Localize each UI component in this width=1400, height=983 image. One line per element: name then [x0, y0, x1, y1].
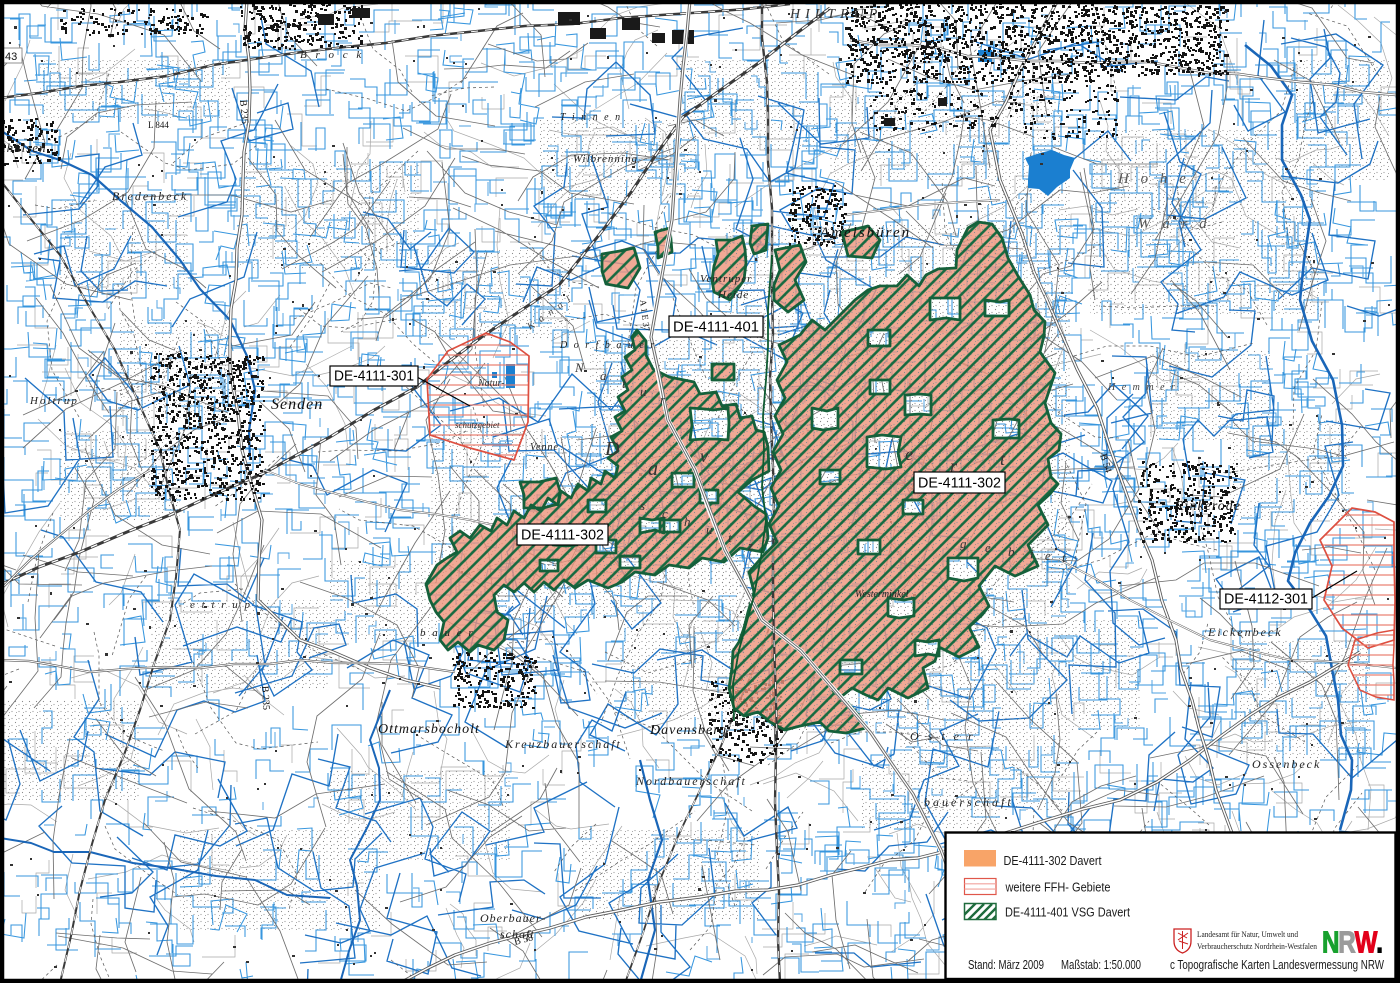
- svg-text:b a u e r: b a u e r: [420, 627, 475, 639]
- svg-text:Heide: Heide: [717, 289, 749, 301]
- svg-text:Westerminkel: Westerminkel: [855, 589, 909, 600]
- svg-text:HILTRUP: HILTRUP: [789, 7, 882, 22]
- svg-text:e t t r u p: e t t r u p: [190, 599, 252, 611]
- svg-text:t: t: [622, 376, 626, 391]
- svg-text:H e m m e r: H e m m e r: [1107, 382, 1177, 393]
- svg-text:Senden: Senden: [271, 396, 323, 413]
- svg-text:D o r f b a u e r: D o r f b a u e r: [559, 340, 656, 351]
- svg-text:b: b: [1008, 544, 1015, 559]
- svg-text:e: e: [985, 540, 991, 555]
- svg-text:N: N: [574, 360, 585, 375]
- svg-text:lhülsen: lhülsen: [2, 140, 47, 155]
- svg-text:Davensberg: Davensberg: [649, 723, 727, 738]
- svg-text:DE-4111-301: DE-4111-301: [334, 369, 414, 385]
- svg-text:z: z: [747, 538, 753, 553]
- svg-text:DE-4111-401: DE-4111-401: [673, 320, 759, 336]
- svg-text:Natur-: Natur-: [477, 378, 504, 389]
- svg-text:43: 43: [5, 51, 17, 63]
- svg-text:W a r d: W a r d: [1138, 216, 1211, 232]
- svg-text:schutzgebiet: schutzgebiet: [455, 420, 500, 430]
- svg-text:c: c: [662, 506, 668, 521]
- svg-text:Ossenbeck: Ossenbeck: [1252, 757, 1321, 771]
- svg-text:e: e: [905, 444, 913, 464]
- svg-text:Venne: Venne: [530, 442, 559, 453]
- svg-text:B 235: B 235: [259, 686, 271, 711]
- svg-text:e: e: [1045, 548, 1051, 563]
- svg-text:Rinkerode: Rinkerode: [1174, 499, 1241, 514]
- svg-text:a: a: [648, 458, 658, 480]
- svg-text:Oberbauer-: Oberbauer-: [480, 911, 546, 925]
- svg-text:v: v: [700, 446, 708, 466]
- svg-text:O s t e r: O s t e r: [910, 729, 976, 743]
- svg-text:Bredenbeck: Bredenbeck: [112, 189, 188, 203]
- svg-text:H o h e: H o h e: [1117, 171, 1190, 187]
- svg-text:a: a: [600, 368, 607, 383]
- svg-text:Holtrup: Holtrup: [29, 395, 79, 407]
- svg-text:bauerschaft: bauerschaft: [924, 795, 1014, 809]
- svg-text:Wilbrenning: Wilbrenning: [573, 153, 638, 165]
- svg-text:Kreuzbauerschaft: Kreuzbauerschaft: [504, 737, 622, 751]
- svg-text:T i n n e n: T i n n e n: [560, 112, 622, 123]
- svg-text:B 235: B 235: [237, 99, 250, 124]
- svg-text:B r o c k: B r o c k: [300, 49, 364, 61]
- svg-text:DE-4111-302: DE-4111-302: [918, 476, 1001, 492]
- svg-text:Ventruper: Ventruper: [700, 273, 752, 285]
- svg-text:Amelsbüren: Amelsbüren: [819, 225, 911, 241]
- svg-text:u: u: [706, 522, 713, 537]
- svg-text:s: s: [640, 498, 645, 513]
- svg-text:t: t: [728, 530, 732, 545]
- svg-text:Nordbauerschaft: Nordbauerschaft: [635, 774, 747, 788]
- svg-text:Ottmarsbocholt: Ottmarsbocholt: [378, 722, 480, 737]
- svg-text:Eickenbeck: Eickenbeck: [1207, 625, 1283, 639]
- svg-text:i: i: [1030, 546, 1034, 561]
- svg-text:D: D: [604, 438, 620, 460]
- svg-text:h: h: [684, 514, 691, 529]
- svg-text:L 844: L 844: [148, 120, 169, 130]
- svg-text:g: g: [960, 536, 967, 551]
- svg-text:u: u: [640, 384, 647, 399]
- svg-text:t: t: [1062, 550, 1066, 565]
- svg-text:DE-4111-302: DE-4111-302: [521, 528, 604, 544]
